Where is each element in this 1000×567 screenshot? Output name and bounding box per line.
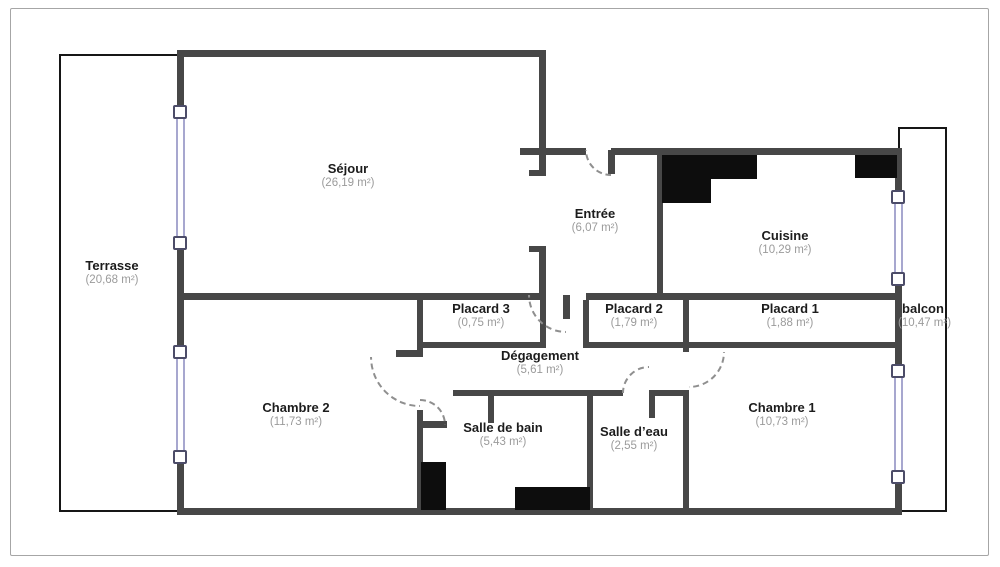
fixture-bathroom-left <box>421 462 446 510</box>
window-end-icon <box>173 105 187 119</box>
room-label-salle-deau: Salle d’eau (2,55 m²) <box>574 424 694 454</box>
room-name: Placard 2 <box>574 301 694 316</box>
window-end-icon <box>173 236 187 250</box>
room-label-chambre1: Chambre 1 (10,73 m²) <box>722 400 842 430</box>
arc-entrance-door-icon <box>585 150 611 176</box>
window-end-icon <box>891 470 905 484</box>
arc-chambre1-door-icon <box>689 352 725 388</box>
room-label-entree: Entrée (6,07 m²) <box>535 206 655 236</box>
wall-sejour-east-upper <box>539 50 546 175</box>
wall-middle-east <box>586 293 902 300</box>
room-label-cuisine: Cuisine (10,29 m²) <box>725 228 845 258</box>
wall-north-cuisine <box>611 148 902 155</box>
room-name: Chambre 1 <box>722 400 842 415</box>
wall-north-entree <box>546 148 586 155</box>
wall-placard1-bottom <box>683 342 902 348</box>
room-name: Salle d’eau <box>574 424 694 439</box>
wall-stub-sdb <box>488 396 494 423</box>
balcon-wall-connector <box>898 127 900 150</box>
wall-middle-west <box>177 293 546 300</box>
room-name: Placard 1 <box>730 301 850 316</box>
wall-degagement-south-east <box>649 390 689 396</box>
arc-sde-door-icon <box>622 366 649 393</box>
room-label-salle-de-bain: Salle de bain (5,43 m²) <box>443 420 563 450</box>
room-name: balcon <box>898 301 948 316</box>
terrasse-wall-top <box>59 54 181 56</box>
window-terrasse-lower <box>176 352 185 458</box>
fixture-kitchen-counter-top <box>662 155 757 179</box>
room-label-degagement: Dégagement (5,61 m²) <box>480 348 600 378</box>
room-label-placard3: Placard 3 (0,75 m²) <box>421 301 541 331</box>
room-name: Placard 3 <box>421 301 541 316</box>
room-name: Salle de bain <box>443 420 563 435</box>
room-area: (10,47 m²) <box>898 316 948 331</box>
balcon-wall-bottom <box>898 510 947 512</box>
window-terrasse-upper <box>176 112 185 244</box>
room-area: (5,43 m²) <box>443 435 563 450</box>
wall-north-sejour <box>177 50 546 57</box>
window-cuisine <box>894 198 903 278</box>
room-label-balcon: balcon (10,47 m²) <box>898 301 948 331</box>
room-area: (11,73 m²) <box>236 415 356 430</box>
fixture-kitchen-counter-side <box>662 179 711 203</box>
room-name: Chambre 2 <box>236 400 356 415</box>
wall-stub-sejour <box>520 148 546 155</box>
arc-chambre2-door-icon <box>370 357 420 407</box>
room-area: (1,88 m²) <box>730 316 850 331</box>
room-label-placard2: Placard 2 (1,79 m²) <box>574 301 694 331</box>
window-chambre1 <box>894 372 903 478</box>
fixture-bathroom-bottom <box>515 487 590 510</box>
jamb-sejour-entree-bottom <box>529 246 546 252</box>
wall-degagement-south-west <box>453 390 623 396</box>
room-name: Cuisine <box>725 228 845 243</box>
window-end-icon <box>173 450 187 464</box>
jamb-sejour-entree-top <box>529 170 546 176</box>
room-label-terrasse: Terrasse (20,68 m²) <box>52 258 172 288</box>
room-area: (20,68 m²) <box>52 273 172 288</box>
window-end-icon <box>173 345 187 359</box>
window-end-icon <box>891 272 905 286</box>
room-label-chambre2: Chambre 2 (11,73 m²) <box>236 400 356 430</box>
room-area: (26,19 m²) <box>278 176 418 191</box>
jamb-sde-door <box>649 396 655 418</box>
room-area: (1,79 m²) <box>574 316 694 331</box>
window-end-icon <box>891 364 905 378</box>
room-name: Séjour <box>278 161 418 176</box>
room-area: (2,55 m²) <box>574 439 694 454</box>
room-area: (5,61 m²) <box>480 363 600 378</box>
floor-plan: Terrasse (20,68 m²) Séjour (26,19 m²) En… <box>0 0 1000 567</box>
room-name: Terrasse <box>52 258 172 273</box>
fixture-kitchen-right <box>855 155 897 178</box>
terrasse-wall-bottom <box>59 510 181 512</box>
room-area: (6,07 m²) <box>535 221 655 236</box>
balcon-wall-top <box>898 127 947 129</box>
room-name: Dégagement <box>480 348 600 363</box>
room-area: (0,75 m²) <box>421 316 541 331</box>
room-name: Entrée <box>535 206 655 221</box>
room-label-placard1: Placard 1 (1,88 m²) <box>730 301 850 331</box>
room-area: (10,73 m²) <box>722 415 842 430</box>
room-label-sejour: Séjour (26,19 m²) <box>278 161 418 191</box>
jamb-chambre2-door <box>396 350 421 357</box>
window-end-icon <box>891 190 905 204</box>
wall-sejour-east-lower <box>539 248 546 299</box>
room-area: (10,29 m²) <box>725 243 845 258</box>
